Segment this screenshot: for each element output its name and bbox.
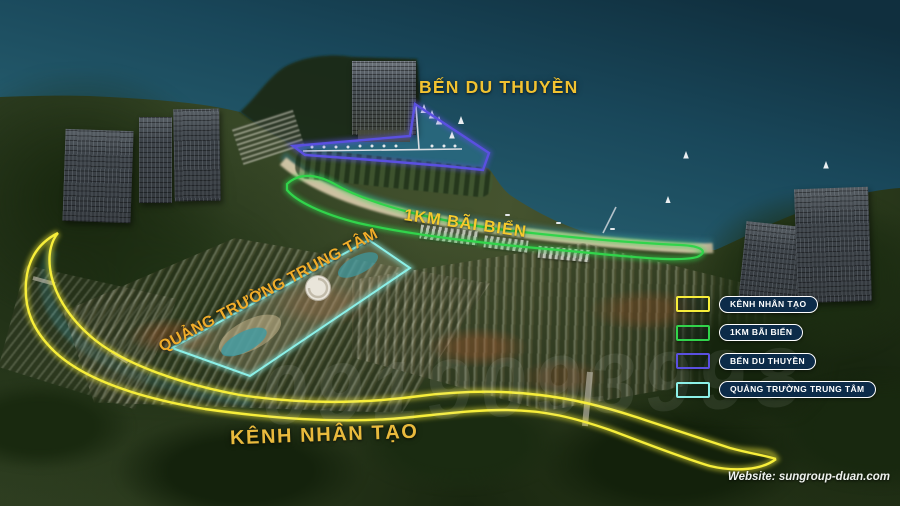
legend-item-square: QUẢNG TRƯỜNG TRUNG TÂM [676, 382, 876, 398]
masterplan-aerial-view: 0919093998 BẾN DU THUYỀN 1KM BÃI BIỂN QU… [0, 0, 900, 506]
legend-item-beach: 1KM BÃI BIỂN [676, 325, 876, 341]
square-swatch-icon [676, 382, 710, 398]
legend-item-marina: BẾN DU THUYỀN [676, 353, 876, 369]
website-credit: Website: sungroup-duan.com [728, 471, 890, 483]
marina-swatch-icon [676, 353, 710, 369]
canal-swatch-icon [676, 296, 710, 312]
beach-swatch-icon [676, 325, 710, 341]
legend-pill-canal: KÊNH NHÂN TẠO [719, 296, 818, 313]
sailboats [421, 104, 829, 203]
legend-item-canal: KÊNH NHÂN TẠO [676, 296, 876, 312]
legend-pill-square: QUẢNG TRƯỜNG TRUNG TÂM [719, 381, 876, 398]
central-square-area [172, 240, 410, 376]
zone-outlines-layer [0, 0, 900, 506]
legend: KÊNH NHÂN TẠO 1KM BÃI BIỂN BẾN DU THUYỀN… [676, 296, 876, 410]
marina-label: BẾN DU THUYỀN [419, 77, 579, 98]
legend-pill-marina: BẾN DU THUYỀN [719, 353, 816, 370]
legend-pill-beach: 1KM BÃI BIỂN [719, 324, 803, 341]
